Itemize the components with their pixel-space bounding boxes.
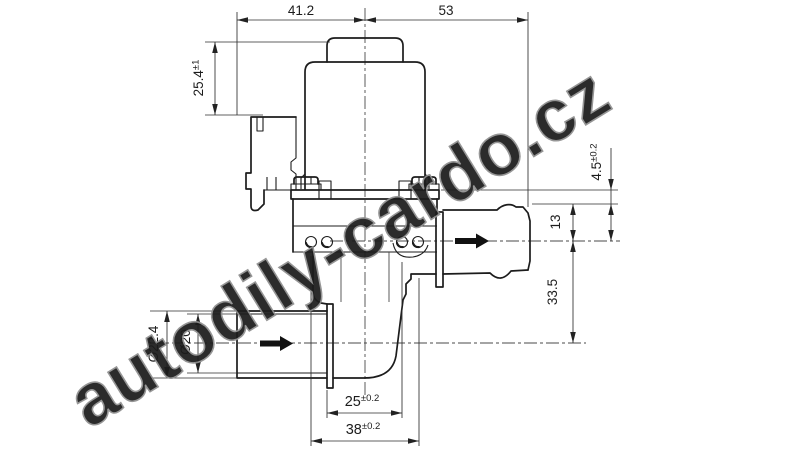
inlet-flange-plate [327, 304, 333, 388]
outlet-pipe-bottom [443, 270, 528, 278]
dim-port-to-axis: 13 [548, 214, 563, 229]
connector-slot [257, 117, 263, 131]
connector-inner-detail [267, 177, 276, 190]
electrical-connector [246, 117, 296, 211]
dim-flange-to-port: 4.5±0.2 [589, 143, 605, 180]
boot-outline [333, 274, 436, 378]
watermark-text: autodily-cardo.cz [55, 51, 624, 443]
dim-width-left: 41.2 [288, 3, 314, 18]
drawing-canvas: 41.2 53 25.4±1 Ø22.4 Ø20 25±0.2 38±0.2 1… [0, 0, 800, 450]
dim-screw-outer: 38±0.2 [346, 421, 381, 438]
connector-outline [246, 117, 296, 211]
valve-technical-drawing: 41.2 53 25.4±1 Ø22.4 Ø20 25±0.2 38±0.2 1… [0, 0, 800, 450]
flow-arrow-outlet [455, 234, 489, 249]
dim-axis-to-axis: 33.5 [545, 279, 560, 305]
dim-width-right: 53 [438, 3, 453, 18]
dim-screw-inner: 25±0.2 [345, 393, 380, 410]
dim-cap-height: 25.4±1 [191, 60, 207, 97]
